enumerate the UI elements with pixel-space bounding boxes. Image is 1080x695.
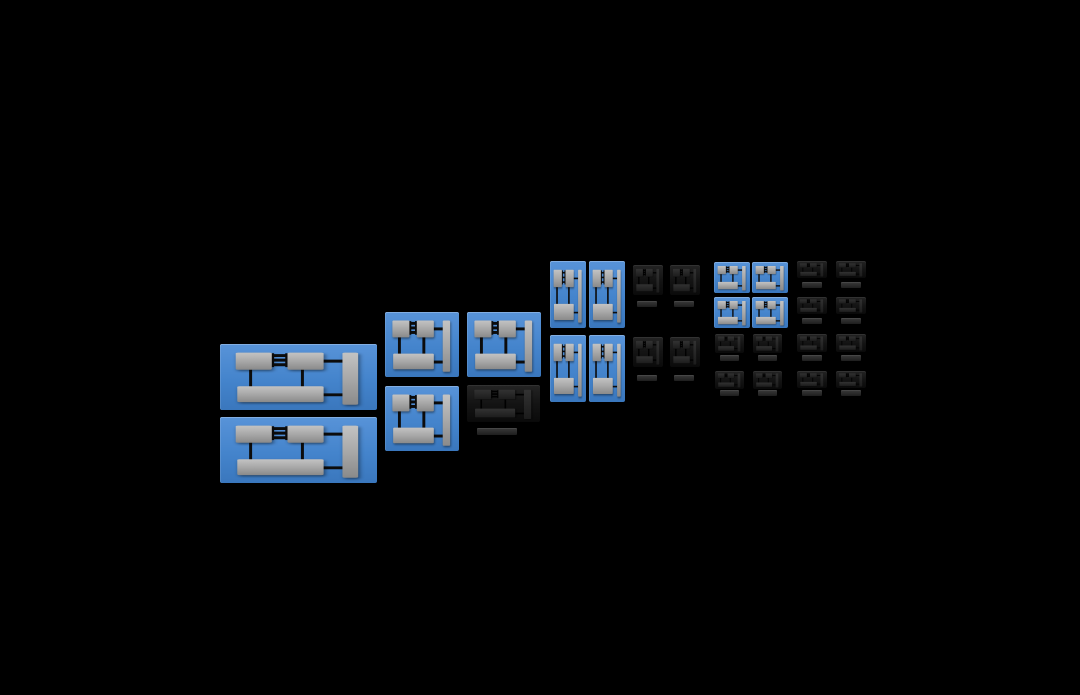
- block-top-right: [810, 263, 817, 267]
- block-top-right: [683, 341, 690, 349]
- tile-tall-2[interactable]: [589, 261, 625, 328]
- block-top-left: [236, 353, 272, 370]
- block-top-right: [604, 270, 612, 287]
- block-top-right: [810, 299, 817, 303]
- tile-label-bar: [758, 355, 777, 361]
- block-bottom: [554, 304, 574, 320]
- tile-small-4[interactable]: [752, 297, 788, 328]
- block-bottom: [718, 317, 738, 324]
- block-bottom: [673, 356, 690, 363]
- tile-label-bar: [841, 282, 861, 288]
- block-side-bar: [693, 269, 696, 293]
- block-diagram-icon: [836, 297, 866, 314]
- tile-medium-3[interactable]: [385, 386, 459, 451]
- block-bottom: [636, 284, 653, 291]
- block-top-left: [392, 320, 409, 337]
- desktop-background: { "scene": { "width": 1080, "height": 69…: [0, 0, 1080, 695]
- block-top-left: [718, 266, 726, 274]
- block-side-bar: [859, 299, 862, 312]
- block-side-bar: [738, 336, 741, 351]
- block-diagram-icon: [670, 337, 700, 367]
- block-top-left: [756, 373, 763, 378]
- block-diagram-icon: [797, 297, 827, 314]
- block-top-left: [554, 270, 562, 287]
- block-top-left: [593, 270, 601, 287]
- block-bottom: [718, 282, 738, 289]
- tile-medium-1[interactable]: [385, 312, 459, 377]
- block-diagram-icon: [836, 371, 866, 388]
- block-bottom: [756, 383, 772, 387]
- block-diagram-icon: [633, 337, 663, 367]
- tile-small-1[interactable]: [714, 262, 750, 293]
- block-diagram-icon: [797, 334, 827, 352]
- block-bottom: [393, 354, 434, 370]
- tile-mini-faded-11[interactable]: [797, 371, 827, 388]
- block-side-bar: [776, 373, 779, 387]
- block-diagram-icon: [550, 261, 586, 328]
- block-side-bar: [524, 390, 531, 419]
- block-side-bar: [443, 320, 450, 371]
- tile-square-faded-2[interactable]: [670, 265, 700, 295]
- block-bottom: [800, 308, 817, 312]
- block-side-bar: [617, 270, 621, 323]
- block-diagram-icon: [715, 371, 744, 389]
- tile-mini-faded-10[interactable]: [836, 334, 866, 352]
- block-top-right: [417, 320, 434, 337]
- block-side-bar: [342, 353, 358, 405]
- block-bottom: [839, 346, 856, 350]
- tile-label-bar: [674, 301, 694, 307]
- zoom-canvas[interactable]: [0, 0, 1080, 695]
- block-top-left: [673, 341, 680, 349]
- block-top-left: [800, 373, 807, 377]
- block-diagram-icon: [385, 312, 459, 377]
- block-top-left: [756, 336, 763, 341]
- block-bottom: [475, 354, 516, 370]
- block-top-right: [849, 299, 856, 303]
- block-top-left: [673, 269, 680, 277]
- block-side-bar: [656, 269, 659, 293]
- block-side-bar: [742, 266, 746, 290]
- block-bottom: [593, 304, 613, 320]
- tile-square-faded-3[interactable]: [633, 337, 663, 367]
- block-bottom: [756, 282, 776, 289]
- block-top-left: [474, 320, 491, 337]
- block-top-left: [392, 394, 409, 411]
- block-bottom: [800, 382, 817, 386]
- block-top-right: [565, 344, 573, 361]
- block-top-left: [718, 373, 725, 378]
- tile-small-2[interactable]: [752, 262, 788, 293]
- block-bottom: [237, 386, 323, 402]
- block-bottom: [673, 284, 690, 291]
- block-diagram-icon: [670, 265, 700, 295]
- block-diagram-icon: [550, 335, 586, 402]
- block-side-bar: [820, 299, 823, 312]
- block-diagram-icon: [714, 262, 750, 293]
- block-bottom: [756, 346, 772, 351]
- block-top-right: [565, 270, 573, 287]
- block-top-right: [810, 336, 817, 341]
- block-top-left: [718, 301, 726, 309]
- block-bottom: [839, 308, 856, 312]
- block-top-right: [810, 373, 817, 377]
- block-diagram-icon: [467, 312, 541, 377]
- tile-mini-faded-8[interactable]: [836, 297, 866, 314]
- block-side-bar: [820, 336, 823, 350]
- block-top-left: [839, 299, 846, 303]
- block-top-right: [767, 301, 775, 309]
- block-top-right: [499, 320, 516, 337]
- tile-mini-faded-7[interactable]: [797, 297, 827, 314]
- block-bottom: [839, 382, 856, 386]
- tile-label-bar: [720, 355, 739, 361]
- block-side-bar: [780, 266, 784, 290]
- block-diagram-icon: [714, 297, 750, 328]
- block-top-right: [767, 266, 775, 274]
- block-top-right: [288, 426, 324, 443]
- block-side-bar: [820, 373, 823, 386]
- tile-medium-2[interactable]: [467, 312, 541, 377]
- block-diagram-icon: [753, 334, 782, 353]
- block-top-left: [636, 341, 643, 349]
- block-side-bar: [738, 373, 741, 387]
- tile-medium-faded[interactable]: [467, 385, 540, 422]
- block-side-bar: [617, 344, 621, 397]
- block-top-left: [800, 299, 807, 303]
- block-top-left: [839, 263, 846, 267]
- block-top-right: [765, 336, 772, 341]
- block-bottom: [756, 317, 776, 324]
- block-top-right: [729, 301, 737, 309]
- block-top-right: [417, 394, 434, 411]
- block-bottom: [475, 409, 515, 418]
- block-side-bar: [780, 301, 784, 325]
- block-top-left: [554, 344, 562, 361]
- tile-label-bar: [802, 318, 822, 324]
- block-side-bar: [776, 336, 779, 351]
- block-top-right: [646, 269, 653, 277]
- block-diagram-icon: [797, 371, 827, 388]
- block-top-left: [593, 344, 601, 361]
- block-top-right: [288, 353, 324, 370]
- block-top-right: [849, 373, 856, 377]
- tile-mini-faded-2[interactable]: [753, 334, 782, 353]
- block-diagram-icon: [753, 371, 782, 389]
- block-diagram-icon: [589, 335, 625, 402]
- tile-label-bar: [758, 390, 777, 396]
- block-top-right: [849, 336, 856, 341]
- block-top-left: [636, 269, 643, 277]
- tile-small-3[interactable]: [714, 297, 750, 328]
- block-top-right: [604, 344, 612, 361]
- tile-large-2[interactable]: [220, 417, 377, 483]
- tile-mini-faded-3[interactable]: [715, 371, 744, 389]
- block-top-left: [839, 373, 846, 377]
- block-bottom: [718, 383, 734, 387]
- block-top-left: [839, 336, 846, 341]
- block-top-left: [756, 301, 764, 309]
- block-top-right: [498, 390, 515, 400]
- tile-mini-faded-4[interactable]: [753, 371, 782, 389]
- tile-square-faded-1[interactable]: [633, 265, 663, 295]
- tile-label-bar: [477, 428, 517, 435]
- block-diagram-icon: [752, 297, 788, 328]
- tile-mini-faded-6[interactable]: [836, 261, 866, 278]
- tile-label-bar: [802, 282, 822, 288]
- block-side-bar: [859, 336, 862, 350]
- block-top-left: [800, 263, 807, 267]
- block-diagram-icon: [385, 386, 459, 451]
- block-diagram-icon: [633, 265, 663, 295]
- block-side-bar: [656, 341, 659, 365]
- tile-mini-faded-9[interactable]: [797, 334, 827, 352]
- block-side-bar: [342, 426, 358, 478]
- block-side-bar: [820, 263, 823, 276]
- block-diagram-icon: [715, 334, 744, 353]
- block-top-left: [800, 336, 807, 341]
- block-diagram-icon: [220, 417, 377, 483]
- block-side-bar: [578, 270, 582, 323]
- block-side-bar: [859, 263, 862, 276]
- block-top-right: [683, 269, 690, 277]
- tile-mini-faded-1[interactable]: [715, 334, 744, 353]
- block-diagram-icon: [752, 262, 788, 293]
- block-diagram-icon: [836, 334, 866, 352]
- block-side-bar: [578, 344, 582, 397]
- tile-label-bar: [637, 375, 657, 381]
- block-bottom: [237, 459, 323, 475]
- block-diagram-icon: [220, 344, 377, 410]
- block-top-right: [646, 341, 653, 349]
- block-bottom: [800, 272, 817, 276]
- tile-label-bar: [841, 390, 861, 396]
- block-diagram-icon: [797, 261, 827, 278]
- block-side-bar: [693, 341, 696, 365]
- tile-label-bar: [674, 375, 694, 381]
- block-top-left: [756, 266, 764, 274]
- block-side-bar: [443, 394, 450, 445]
- block-bottom: [554, 378, 574, 394]
- block-top-right: [729, 266, 737, 274]
- block-bottom: [839, 272, 856, 276]
- tile-label-bar: [841, 355, 861, 361]
- tile-label-bar: [637, 301, 657, 307]
- block-top-left: [474, 390, 491, 400]
- block-top-right: [727, 373, 734, 378]
- block-diagram-icon: [467, 385, 540, 422]
- tile-tall-4[interactable]: [589, 335, 625, 402]
- block-diagram-icon: [836, 261, 866, 278]
- tile-label-bar: [802, 355, 822, 361]
- tile-tall-3[interactable]: [550, 335, 586, 402]
- tile-square-faded-4[interactable]: [670, 337, 700, 367]
- block-side-bar: [859, 373, 862, 386]
- block-bottom: [393, 428, 434, 444]
- tile-large-1[interactable]: [220, 344, 377, 410]
- tile-tall-1[interactable]: [550, 261, 586, 328]
- block-bottom: [636, 356, 653, 363]
- block-diagram-icon: [589, 261, 625, 328]
- block-top-right: [849, 263, 856, 267]
- block-top-right: [727, 336, 734, 341]
- tile-label-bar: [802, 390, 822, 396]
- block-side-bar: [742, 301, 746, 325]
- block-bottom: [718, 346, 734, 351]
- block-bottom: [593, 378, 613, 394]
- block-bottom: [800, 346, 817, 350]
- tile-mini-faded-12[interactable]: [836, 371, 866, 388]
- block-top-left: [236, 426, 272, 443]
- block-top-left: [718, 336, 725, 341]
- tile-label-bar: [841, 318, 861, 324]
- tile-mini-faded-5[interactable]: [797, 261, 827, 278]
- block-side-bar: [525, 320, 532, 371]
- tile-label-bar: [720, 390, 739, 396]
- block-top-right: [765, 373, 772, 378]
